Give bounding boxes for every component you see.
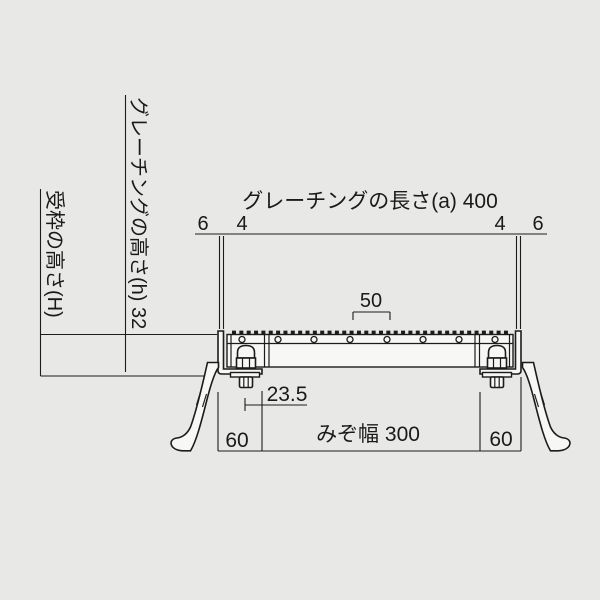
grating-section (227, 332, 513, 367)
right-anchor (523, 363, 570, 451)
dim-crossbar-pitch-50: 50 (360, 290, 382, 312)
top-dimension-lines (195, 234, 547, 329)
hex-nut (237, 358, 256, 368)
grating-cross-section-drawing: グレーチングの長さ(a) 400 6 4 4 6 50 23.5 60 みぞ幅 … (0, 0, 600, 600)
dim-grating-height-label: グレーチングの高さ(h) 32 (127, 97, 150, 329)
hex-nut (488, 358, 507, 368)
dome-head (489, 346, 506, 359)
dim-gap-4-left: 4 (236, 213, 247, 235)
dim-offset-23-5: 23.5 (267, 383, 308, 406)
lower-bolt (491, 377, 504, 388)
dim-seat-60-left: 60 (225, 429, 248, 452)
crossbar-pitch-dimension (353, 312, 390, 320)
dim-end-6-left: 6 (197, 213, 208, 235)
dim-frame-height-label: 受枠の高さ(H) (43, 190, 66, 318)
dim-seat-60-right: 60 (489, 428, 512, 451)
dim-groove-width-300: みぞ幅 300 (316, 423, 420, 446)
dim-gap-4-right: 4 (494, 213, 505, 235)
dome-head (238, 346, 255, 359)
dim-end-6-right: 6 (532, 213, 543, 235)
lower-bolt (240, 377, 253, 388)
grating-drawing-canvas: グレーチングの長さ(a) 400 6 4 4 6 50 23.5 60 みぞ幅 … (0, 0, 600, 600)
dim-grating-length: グレーチングの長さ(a) 400 (242, 190, 498, 213)
